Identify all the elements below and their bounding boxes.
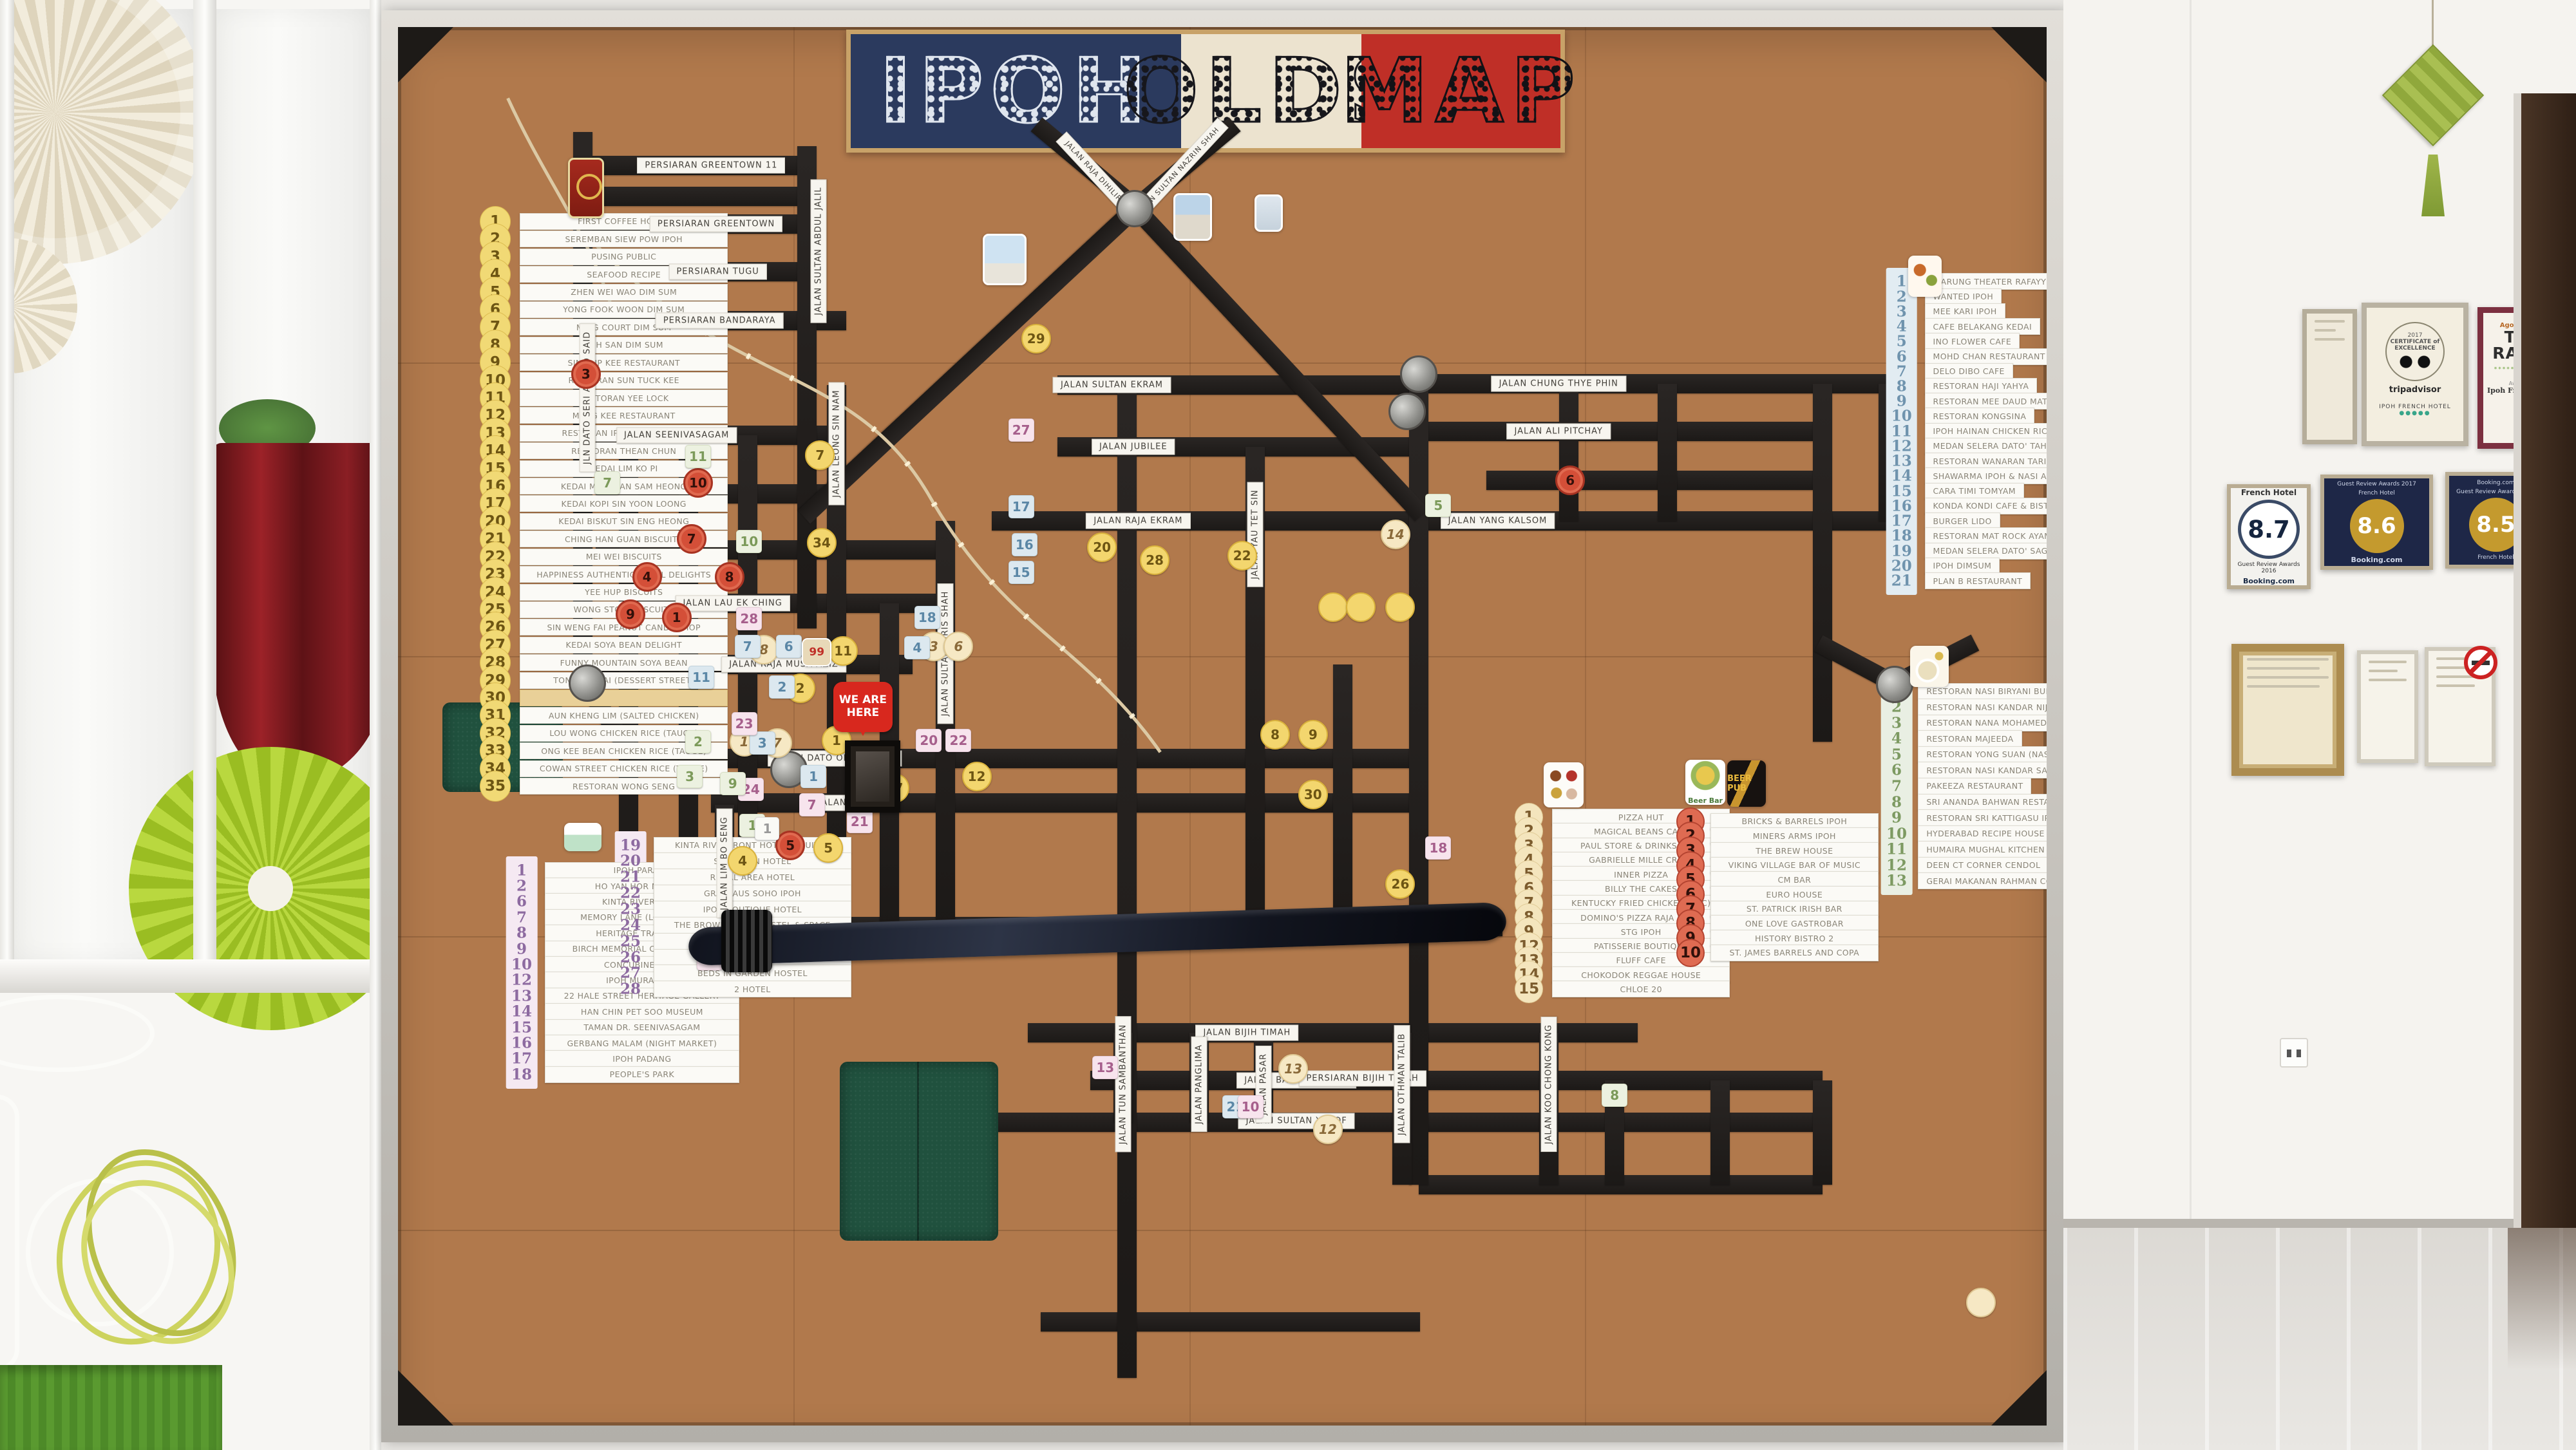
- legend-item-blue_malay: SHAWARMA IPOH & NASI ARAB: [1925, 467, 2047, 484]
- rating-score: 8.6: [2350, 499, 2404, 553]
- hotel-name: IPOH FRENCH HOTEL: [2367, 404, 2463, 410]
- legend-number: 22: [617, 885, 644, 902]
- map-marker: 18: [1425, 836, 1451, 860]
- roundabout-button: [569, 664, 606, 702]
- street-label: JALAN LAU EK CHING: [676, 595, 790, 611]
- map-marker: 22: [1227, 541, 1257, 570]
- tripadvisor-certificate: 2017 CERTIFICATE of EXCELLENCE tripadvis…: [2362, 303, 2468, 446]
- legend-number: 25: [617, 932, 644, 950]
- rating-score: 8.7: [2238, 500, 2300, 559]
- map-marker: 7: [735, 635, 761, 658]
- attraction-sticker: [564, 823, 601, 851]
- beer-pub-sticker: BEER PUB: [1727, 760, 1766, 807]
- legend-item-green_nasikandar: HUMAIRA MUGHAL KITCHEN RESTAURANT: [1918, 841, 2047, 858]
- map-marker: 30: [1298, 780, 1328, 809]
- legend-number: 27: [617, 965, 644, 982]
- legend-item-yellow_food: SEREMBAN SIEW POW IPOH: [520, 231, 728, 247]
- map-marker: 3: [677, 765, 703, 788]
- we-are-here-marker: WE ARE HERE: [833, 682, 893, 732]
- legend-number: 10: [508, 956, 535, 974]
- legend-number: 21: [617, 869, 644, 886]
- street-label: PERSIARAN GREENTOWN: [650, 216, 782, 232]
- map-marker: 9: [720, 772, 746, 795]
- street-label: JALAN SULTAN EKRAM: [1053, 377, 1171, 393]
- legend-number: 26: [617, 948, 644, 966]
- map-marker: 5: [775, 831, 805, 860]
- map-marker: 6: [1555, 466, 1585, 495]
- legend-item-blue_malay: DELO DIBO CAFE: [1925, 363, 2013, 380]
- map-marker: 4: [904, 636, 930, 659]
- booking-rating-plaque: Guest Review Awards 2017French Hotel8.6B…: [2320, 475, 2433, 570]
- map-marker: 26: [1385, 869, 1415, 899]
- beer-bar-sticker: Beer Bar: [1685, 760, 1725, 805]
- map-marker: 2: [769, 675, 795, 699]
- map-marker: 18: [914, 606, 940, 629]
- plaque-text: French Hotel: [2477, 554, 2514, 561]
- legend-item-purple_attractions: PEOPLE'S PARK: [545, 1066, 739, 1083]
- legend-item-blue_malay: IPOH HAINAN CHICKEN RICE: [1925, 423, 2047, 440]
- legend-number: 28: [617, 981, 644, 998]
- grass-strip: [0, 1365, 222, 1450]
- legend-item-blue_malay: KONDA KONDI CAFE & BISTRO: [1925, 498, 2047, 514]
- legend-item-green_nasikandar: SRI ANANDA BAHWAN RESTAURANT: [1918, 794, 2047, 811]
- malay-food-sticker: [1908, 256, 1942, 297]
- map-marker: 28: [736, 607, 762, 630]
- map-marker: 27: [1009, 419, 1034, 442]
- map-marker: 10: [1238, 1095, 1264, 1118]
- legend-item-green_nasikandar: RESTORAN SRI KATTIGASU IPOH: [1918, 809, 2047, 826]
- legend-item-blue_malay: MEE KARI IPOH: [1925, 303, 2005, 320]
- roundabout-button: [1388, 393, 1426, 430]
- legend-item-yellow_food: AUN KHENG LIM (SALTED CHICKEN): [520, 707, 728, 724]
- street-label: JALAN JUBILEE: [1092, 438, 1175, 455]
- legend-item-blue_malay: BURGER LIDO: [1925, 513, 2000, 529]
- legend-number: 2: [508, 878, 535, 895]
- legend-item-blue_malay: INO FLOWER CAFE: [1925, 333, 2020, 350]
- legend-item-yellow_food: PUSING PUBLIC: [520, 249, 728, 265]
- map-marker: 6: [776, 635, 802, 658]
- legend-item-blue_malay: RESTORAN WANARAN TARI: [1925, 453, 2047, 469]
- map-marker: 5: [813, 833, 843, 863]
- legend-number: 10: [1676, 939, 1705, 967]
- booking-rating-plaque: French Hotel8.7Guest Review Awards 2016B…: [2227, 484, 2311, 589]
- legend-number: 11: [1883, 841, 1910, 858]
- legend-item-yellow_food: ZHEN WEI WAO DIM SUM: [520, 284, 728, 301]
- legend-number: 8: [1883, 793, 1910, 811]
- rating-bubbles: ●●●●●: [2367, 410, 2463, 417]
- legend-number: 15: [508, 1019, 535, 1036]
- cityscape-photo: [1173, 193, 1212, 241]
- roundabout-button: [1116, 190, 1153, 227]
- window-mullion: [193, 0, 216, 992]
- hallway: 2017 CERTIFICATE of EXCELLENCE tripadvis…: [2063, 0, 2576, 1450]
- legend-number: 18: [508, 1066, 535, 1083]
- legend-number: 15: [1515, 975, 1543, 1003]
- map-board-surface: IPOHOLDSMAP PERSIARAN GREENTOWN 11PERSIA…: [398, 27, 2047, 1426]
- legend-item-green_nasikandar: DEEN CT CORNER CENDOL: [1918, 857, 2047, 874]
- street-label: JLN DATO SERI AHMAD SAID: [580, 323, 596, 472]
- legend-item-blue_malay: MOHD CHAN RESTAURANT: [1925, 348, 2047, 365]
- map-marker: 11: [688, 666, 714, 689]
- street-label: JALAN SULTAN ABDUL JALIL: [810, 179, 826, 323]
- legend-number: 9: [1883, 809, 1910, 827]
- legend-number: 12: [508, 972, 535, 989]
- legend-number: 1: [508, 862, 535, 879]
- legend-item-purple_attractions: IPOH PADANG: [545, 1050, 739, 1067]
- map-marker: 8: [1602, 1084, 1627, 1107]
- sticker-label: Beer Bar: [1688, 796, 1723, 805]
- map-marker: 13: [1278, 1054, 1308, 1084]
- legend-item-blue_malay: RESTORAN MEE DAUD MAT JAMAK: [1925, 393, 2047, 410]
- legend-item-yellow_food: [520, 690, 728, 706]
- wall-corner: [2190, 0, 2192, 1223]
- legend-item-blue_malay: MEDAN SELERA DATO' SAGOR: [1925, 543, 2047, 560]
- plaque-text: French Hotel: [2241, 488, 2297, 497]
- plaque-text: Guest Review Awards 2016: [2231, 561, 2307, 574]
- legend-number: 7: [1883, 777, 1910, 795]
- roundabout-button: [1400, 355, 1437, 393]
- window-wall: [0, 0, 381, 1450]
- street-label: PERSIARAN BANDARAYA: [656, 313, 784, 329]
- street-label: JALAN KOO CHONG KONG: [1540, 1017, 1557, 1152]
- map-marker: 9: [1298, 720, 1328, 749]
- legend-number: 17: [508, 1050, 535, 1068]
- legend-number: 9: [508, 940, 535, 957]
- street-label: JALAN BIJIH TIMAH: [1196, 1024, 1299, 1040]
- gold-certificate-frame: [2231, 644, 2344, 776]
- map-marker: [1318, 592, 1348, 622]
- legend-item-purple_attractions: GERBANG MALAM (NIGHT MARKET): [545, 1035, 739, 1051]
- legend-item-green_nasikandar: RESTORAN NASI KANDAR SADDHIR: [1918, 762, 2047, 778]
- map-marker: 15: [1009, 561, 1034, 584]
- legend-number: 19: [617, 836, 644, 854]
- legend-item-purple_attractions: HAN CHIN PET SOO MUSEUM: [545, 1003, 739, 1020]
- skirting: [2063, 1219, 2576, 1228]
- map-marker: [1346, 592, 1376, 622]
- legend-number: 14: [508, 1003, 535, 1021]
- window-sill: [0, 959, 381, 993]
- legend-item-blue_malay: WARUNG THEATER RAFAYYI: [1925, 273, 2047, 290]
- legend-item-yellow_food: FOH SAN DIM SUM: [520, 337, 728, 353]
- map-marker: 3: [571, 359, 601, 389]
- wire-table: [0, 995, 155, 1072]
- map-marker: 1: [800, 765, 826, 788]
- plaque-text: Booking.com: [2351, 556, 2402, 564]
- legend-number: 13: [1883, 872, 1910, 890]
- legend-item-blue_malay: RESTORAN HAJI YAHYA: [1925, 378, 2038, 395]
- map-marker: 7: [799, 793, 825, 816]
- map-marker: 20: [916, 729, 942, 752]
- legend-item-blue_malay: PLAN B RESTAURANT: [1925, 572, 2031, 589]
- street-label: JALAN LEONG SIN NAM: [828, 382, 844, 505]
- map-marker: 11: [685, 445, 711, 468]
- legend-item-yellow_food: SIN HUP KEE RESTAURANT: [520, 354, 728, 371]
- street-label: PERSIARAN TUGU: [668, 264, 766, 280]
- wooden-door: [2514, 93, 2576, 1228]
- plaque-text: French Hotel: [2358, 490, 2395, 496]
- map-marker: [1966, 1288, 1996, 1317]
- legend-item-yellow_food: HAPPINESS AUTHENTIC LOCAL DELIGHTS: [520, 566, 728, 583]
- map-marker: 34: [807, 528, 837, 558]
- legend-item-green_nasikandar: RESTORAN YONG SUAN (NASI GANJA): [1918, 746, 2047, 763]
- map-marker: 4: [728, 846, 757, 876]
- legend-item-yellow_food: MENG KEE RESTAURANT: [520, 407, 728, 424]
- plaque-text: Booking.com: [2477, 480, 2514, 486]
- legend-item-blue_malay: IPOH DIMSUM: [1925, 558, 2000, 574]
- legend-item-purple_attractions: TAMAN DR. SEENIVASAGAM: [545, 1019, 739, 1036]
- legend-number: 24: [617, 916, 644, 934]
- map-marker: 1: [755, 817, 779, 840]
- legend-number: 20: [617, 852, 644, 870]
- map-marker: 10: [683, 468, 713, 498]
- legend-number: 23: [617, 901, 644, 918]
- street-label: JALAN SEENIVASAGAM: [616, 428, 737, 444]
- tripadvisor-owl-icon: [2396, 354, 2434, 370]
- street-label: JALAN ALI PITCHAY: [1507, 423, 1611, 439]
- legend-item-green_nasikandar: GERAI MAKANAN RAHMAN CORNER: [1918, 872, 2047, 889]
- street-label: JALAN TUN SAMBANTHAN: [1115, 1017, 1132, 1153]
- legend-number: 6: [508, 893, 535, 910]
- map-marker: 21: [847, 810, 873, 833]
- sticker-label: BEER PUB: [1727, 774, 1766, 793]
- legend-item-yellow_food: KEDAI KOPI SIN YOON LOONG: [520, 495, 728, 512]
- sticker-label: 99: [809, 646, 824, 659]
- map-marker: 7: [594, 471, 620, 494]
- window-mullion: [0, 0, 14, 992]
- map-marker: 28: [1140, 545, 1170, 575]
- legend-item-blue_malay: RESTORAN MAT ROCK AYAM KUNYIT: [1925, 527, 2047, 544]
- map-marker: 4: [632, 562, 662, 592]
- cert-year: 2017: [2408, 332, 2423, 339]
- wire-stand: [0, 1095, 19, 1371]
- cert-title: CERTIFICATE of EXCELLENCE: [2391, 339, 2440, 352]
- plaque-text: Booking.com: [2243, 577, 2295, 585]
- map-marker: 23: [732, 712, 757, 735]
- legend-number: 16: [508, 1035, 535, 1052]
- legend-item-blue_malay: CARA TIMI TOMYAM: [1925, 483, 2024, 500]
- power-outlet: [2280, 1038, 2308, 1068]
- legend-item-green_nasikandar: RESTORAN NASI KANDAR NIJAR MAJU: [1918, 699, 2047, 715]
- tile-floor: [2063, 1228, 2576, 1450]
- map-marker: 7: [677, 524, 706, 554]
- legend-number: 7: [508, 909, 535, 926]
- legend-number: 21: [1888, 572, 1915, 590]
- legend-number: 6: [1883, 762, 1910, 779]
- street-label: JALAN YANG KALSOM: [1441, 513, 1555, 529]
- roundabout-button: [1876, 666, 1913, 703]
- woven-palm-decoration: [45, 1133, 277, 1391]
- map-marker: 22: [945, 729, 971, 752]
- no-smoking-sign: [2464, 646, 2497, 679]
- small-photo: [1255, 194, 1283, 232]
- street-label: JALAN OTHMAN TALIB: [1394, 1026, 1410, 1144]
- ipoh-parade-photo: [983, 234, 1027, 285]
- map-marker: 12: [962, 762, 992, 791]
- map-marker: 16: [1012, 533, 1037, 556]
- certificate-frame: [2302, 309, 2357, 444]
- map-marker: 17: [1009, 495, 1034, 518]
- legend-item-green_nasikandar: RESTORAN NANA MOHAMED: [1918, 715, 2047, 731]
- map-marker: 14: [1381, 520, 1410, 549]
- legend-item-purple_hotels: GRAYHAUS SOHO IPOH: [654, 885, 851, 901]
- food-plate-sticker: [1544, 762, 1584, 807]
- map-marker: 20: [1087, 532, 1117, 562]
- legend-number: 5: [1883, 746, 1910, 763]
- map-marker: 1: [662, 603, 692, 632]
- map-marker: 12: [1313, 1115, 1343, 1144]
- legend-number: 4: [1883, 730, 1910, 748]
- umbrella-handle: [721, 910, 772, 973]
- ipoh-map-board: IPOHOLDSMAP PERSIARAN GREENTOWN 11PERSIA…: [381, 10, 2063, 1442]
- legend-item-yellow_food: RESTORAN SUN TUCK KEE: [520, 372, 728, 389]
- certificate-frame: [2357, 650, 2418, 763]
- map-marker: [1385, 592, 1415, 622]
- legend-item-blue_malay: CAFE BELAKANG KEDAI: [1925, 318, 2041, 335]
- legend-item-blue_malay: MEDAN SELERA DATO' TAHWIL AZAR (PMI): [1925, 438, 2047, 455]
- legend-item-yellow_food: KEDAI SOYA BEAN DELIGHT: [520, 637, 728, 654]
- legend-item-green_nasikandar: RESTORAN MAJEEDA: [1918, 730, 2022, 747]
- legend-item-green_nasikandar: PAKEEZA RESTAURANT: [1918, 778, 2031, 795]
- map-marker: 8: [1260, 720, 1290, 749]
- legend-item-cream_cafes: CHLOE 20: [1552, 981, 1730, 997]
- legend-number: 3: [1883, 714, 1910, 731]
- map-marker: 29: [1021, 324, 1051, 353]
- black-photo-frame: [845, 740, 900, 813]
- red-curtain: [213, 443, 381, 784]
- map-marker: 5: [1425, 494, 1451, 517]
- banana-leaf-sticker: [1910, 646, 1949, 687]
- legend-number: 12: [1883, 856, 1910, 874]
- plaque-text: Guest Review Awards 2017: [2337, 481, 2416, 487]
- street-label: PERSIARAN GREENTOWN 11: [637, 158, 785, 174]
- map-marker: 11: [828, 636, 858, 666]
- map-marker: 6: [943, 632, 973, 661]
- legend-item-green_nasikandar: HYDERABAD RECIPE HOUSE: [1918, 825, 2047, 842]
- legend-item-yellow_food: RESTORAN YEE LOCK: [520, 390, 728, 406]
- street-label: JALAN RAJA EKRAM: [1086, 513, 1190, 529]
- legend-number: 10: [1883, 825, 1910, 842]
- street-label: JALAN CHUNG THYE PHIN: [1492, 375, 1626, 391]
- dim-sum-shop-sticker: [568, 158, 604, 218]
- legend-number: 35: [480, 771, 511, 802]
- legend-number: 8: [508, 925, 535, 942]
- legend-item-purple_hotels: 2 HOTEL: [654, 981, 851, 997]
- ketupat-ornament: [2382, 44, 2484, 146]
- map-marker: 9: [616, 599, 645, 629]
- legend-number: 13: [508, 987, 535, 1004]
- tripadvisor-wordmark: tripadvisor: [2367, 385, 2463, 395]
- 99-speedmart-sticker: 99: [802, 638, 831, 666]
- street-label: JALAN PANGLIMA: [1191, 1037, 1207, 1132]
- map-marker: 7: [805, 440, 835, 470]
- map-marker: 13: [1092, 1056, 1118, 1079]
- map-marker: 8: [715, 562, 744, 592]
- ketupat-tassel: [2421, 155, 2445, 216]
- street-label: JALAN YAU TET SIN: [1247, 482, 1264, 587]
- map-marker: 2: [685, 730, 711, 753]
- legend-item-blue_malay: RESTORAN KONGSINA: [1925, 408, 2035, 424]
- legend-item-red_bars: ST. JAMES BARRELS AND COPA: [1710, 945, 1879, 961]
- map-marker: 10: [736, 530, 762, 553]
- window-mullion: [370, 0, 381, 1450]
